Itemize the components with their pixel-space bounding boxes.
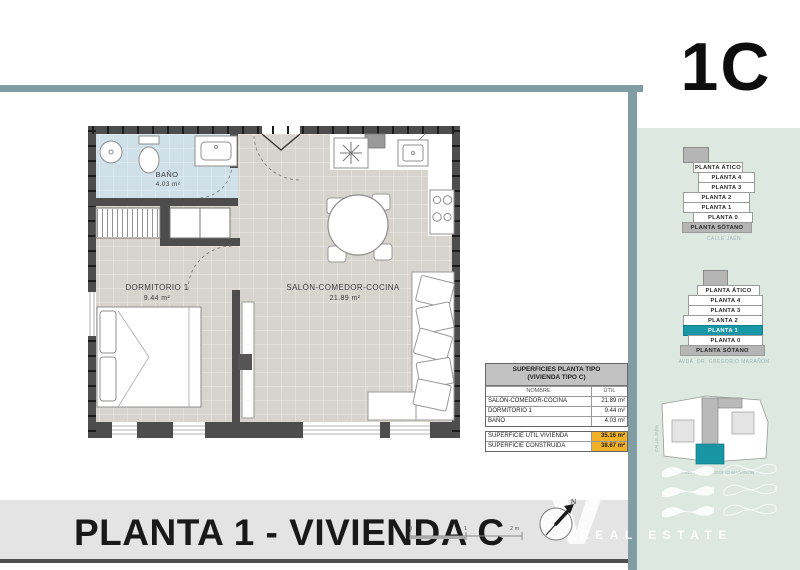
table-row: SALÓN-COMEDOR-COCINA 21.89 m² <box>486 396 627 406</box>
fridge-icon <box>334 138 368 168</box>
scale-bar: 0 1 2 m <box>404 522 528 544</box>
surface-table-columns: NOMBRE ÚTIL <box>486 386 627 396</box>
scale-0: 0 <box>409 526 412 532</box>
surface-table-main: SUPERFICIES PLANTA TIPO (VIVIENDA TIPO C… <box>485 363 628 427</box>
street-label: AVDA. DR. GREGORIO MARAÑÓN <box>648 359 800 365</box>
north-label: N <box>571 499 576 506</box>
surface-table-title: SUPERFICIES PLANTA TIPO (VIVIENDA TIPO C… <box>486 364 627 386</box>
scale-2: 2 m <box>510 526 520 532</box>
living-room-area: 21.89 m² <box>330 295 361 302</box>
teal-horizontal-rule <box>0 85 643 92</box>
bathroom-area: 4.03 m² <box>156 181 181 188</box>
table-row: BAÑO 4.03 m² <box>486 416 627 426</box>
street-label: CALLE JAÉN <box>648 236 800 242</box>
floor-row-sotano: PLANTA SÓTANO <box>680 345 765 356</box>
floor-row-atico: PLANTA ÁTICO <box>693 162 743 173</box>
washbasin-pedestal <box>100 141 122 163</box>
wardrobe <box>96 208 160 238</box>
street-left-label: CALLE JAÉN <box>653 425 659 452</box>
bedroom-area: 9.44 m² <box>144 295 171 302</box>
brand-tagline: REAL ESTATE <box>580 528 733 542</box>
scale-1: 1 <box>464 526 467 532</box>
hall-cabinet <box>170 208 230 238</box>
bathroom-sink <box>195 136 237 166</box>
bedroom-label: DORMITORIO 1 <box>125 283 188 292</box>
living-room-label: SALÓN-COMEDOR-COCINA <box>286 283 400 292</box>
teal-vertical-rule <box>628 85 637 570</box>
roof-block <box>683 147 709 163</box>
bed <box>97 307 201 407</box>
patio-left <box>672 420 694 442</box>
unit-code-label: 1C <box>652 28 800 106</box>
dining-table <box>328 195 388 255</box>
building-stack-top: PLANTA ÁTICO PLANTA 4 PLANTA 3 PLANTA 2 … <box>648 147 800 242</box>
floor-plan: BAÑO 4.03 m² DORMITORIO 1 9.44 m² SALÓN-… <box>85 120 465 456</box>
floor-row-atico: PLANTA ÁTICO <box>697 285 760 296</box>
floor-row-sotano: PLANTA SÓTANO <box>682 222 752 233</box>
toilet <box>139 136 159 173</box>
table-row: DORMITORIO 1 9.44 m² <box>486 406 627 416</box>
bathroom-label: BAÑO <box>156 170 179 179</box>
dining-set <box>327 194 392 262</box>
building-stack-bottom: PLANTA ÁTICO PLANTA 4 PLANTA 3 PLANTA 2 … <box>648 270 800 365</box>
north-compass-icon: N <box>534 494 580 548</box>
patio-right <box>732 412 754 434</box>
table-row: SUPERFICIE ÚTIL VIVIENDA 35.16 m² <box>486 432 627 441</box>
roof-block <box>703 270 728 286</box>
surface-table: SUPERFICIES PLANTA TIPO (VIVIENDA TIPO C… <box>485 363 628 452</box>
brand-waves-icon <box>652 462 792 526</box>
cooktop <box>430 190 454 234</box>
highlighted-unit <box>696 444 724 464</box>
